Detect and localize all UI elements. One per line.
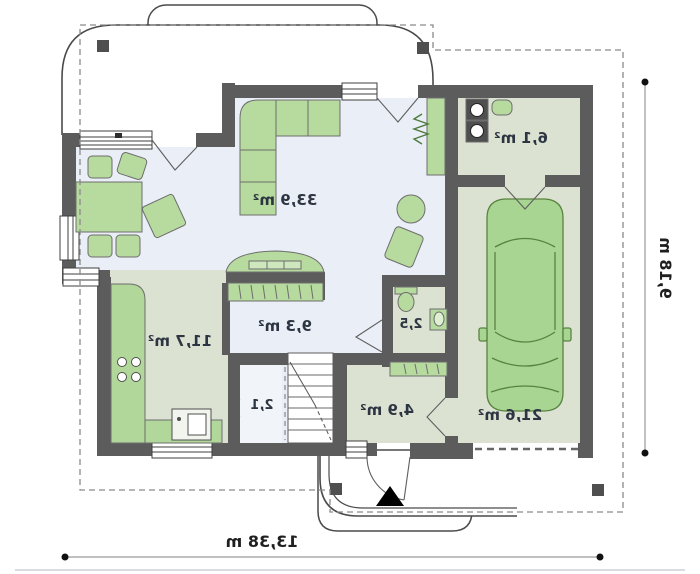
washbasin-icon	[430, 309, 447, 330]
dimension-height-label: 9,18 m	[656, 237, 675, 299]
corner-step-window	[63, 268, 99, 286]
rear-corridor-window	[342, 83, 377, 100]
room-label-bedroom: 9,3 m²	[258, 317, 312, 335]
entrance-porch	[320, 456, 517, 516]
kitchen-sink-icon	[172, 409, 211, 440]
bedroom-wardrobe-icon	[228, 283, 323, 301]
terrace-post	[417, 42, 429, 54]
dimension-width-label: 13,38 m	[226, 532, 299, 551]
room-label-kitchen: 11,7 m²	[148, 332, 212, 350]
hall-wardrobe-icon	[390, 362, 447, 376]
terrace-post	[97, 40, 109, 52]
car-icon	[479, 199, 571, 411]
floor-plan-canvas: 33,9 m² 11,7 m² 9,3 m² 2,5 2,1 4,9 m² 6,…	[0, 0, 700, 574]
washer-dryer-icon	[466, 99, 488, 142]
hall-window	[346, 441, 367, 458]
floor-plan: 33,9 m² 11,7 m² 9,3 m² 2,5 2,1 4,9 m² 6,…	[0, 0, 700, 574]
room-label-pantry: 2,1	[250, 398, 273, 413]
room-label-garage: 21,6 m²	[478, 406, 542, 424]
room-label-living: 33,9 m²	[253, 191, 317, 209]
utility-sink-icon	[492, 100, 512, 115]
terrace-sliding-door	[80, 131, 152, 149]
mirrored-plan: 33,9 m² 11,7 m² 9,3 m² 2,5 2,1 4,9 m² 6,…	[15, 5, 685, 570]
side-table-icon	[397, 195, 425, 223]
room-label-wc: 2,5	[399, 317, 422, 332]
kitchen-window	[152, 441, 212, 458]
porch-post	[330, 483, 342, 495]
stairs	[285, 353, 333, 443]
room-label-hall: 4,9 m²	[360, 401, 414, 419]
cabinet-icon	[427, 98, 445, 175]
room-label-utility: 6,1 m²	[494, 129, 548, 147]
dining-table-icon	[76, 182, 142, 232]
corner-post	[592, 484, 604, 496]
